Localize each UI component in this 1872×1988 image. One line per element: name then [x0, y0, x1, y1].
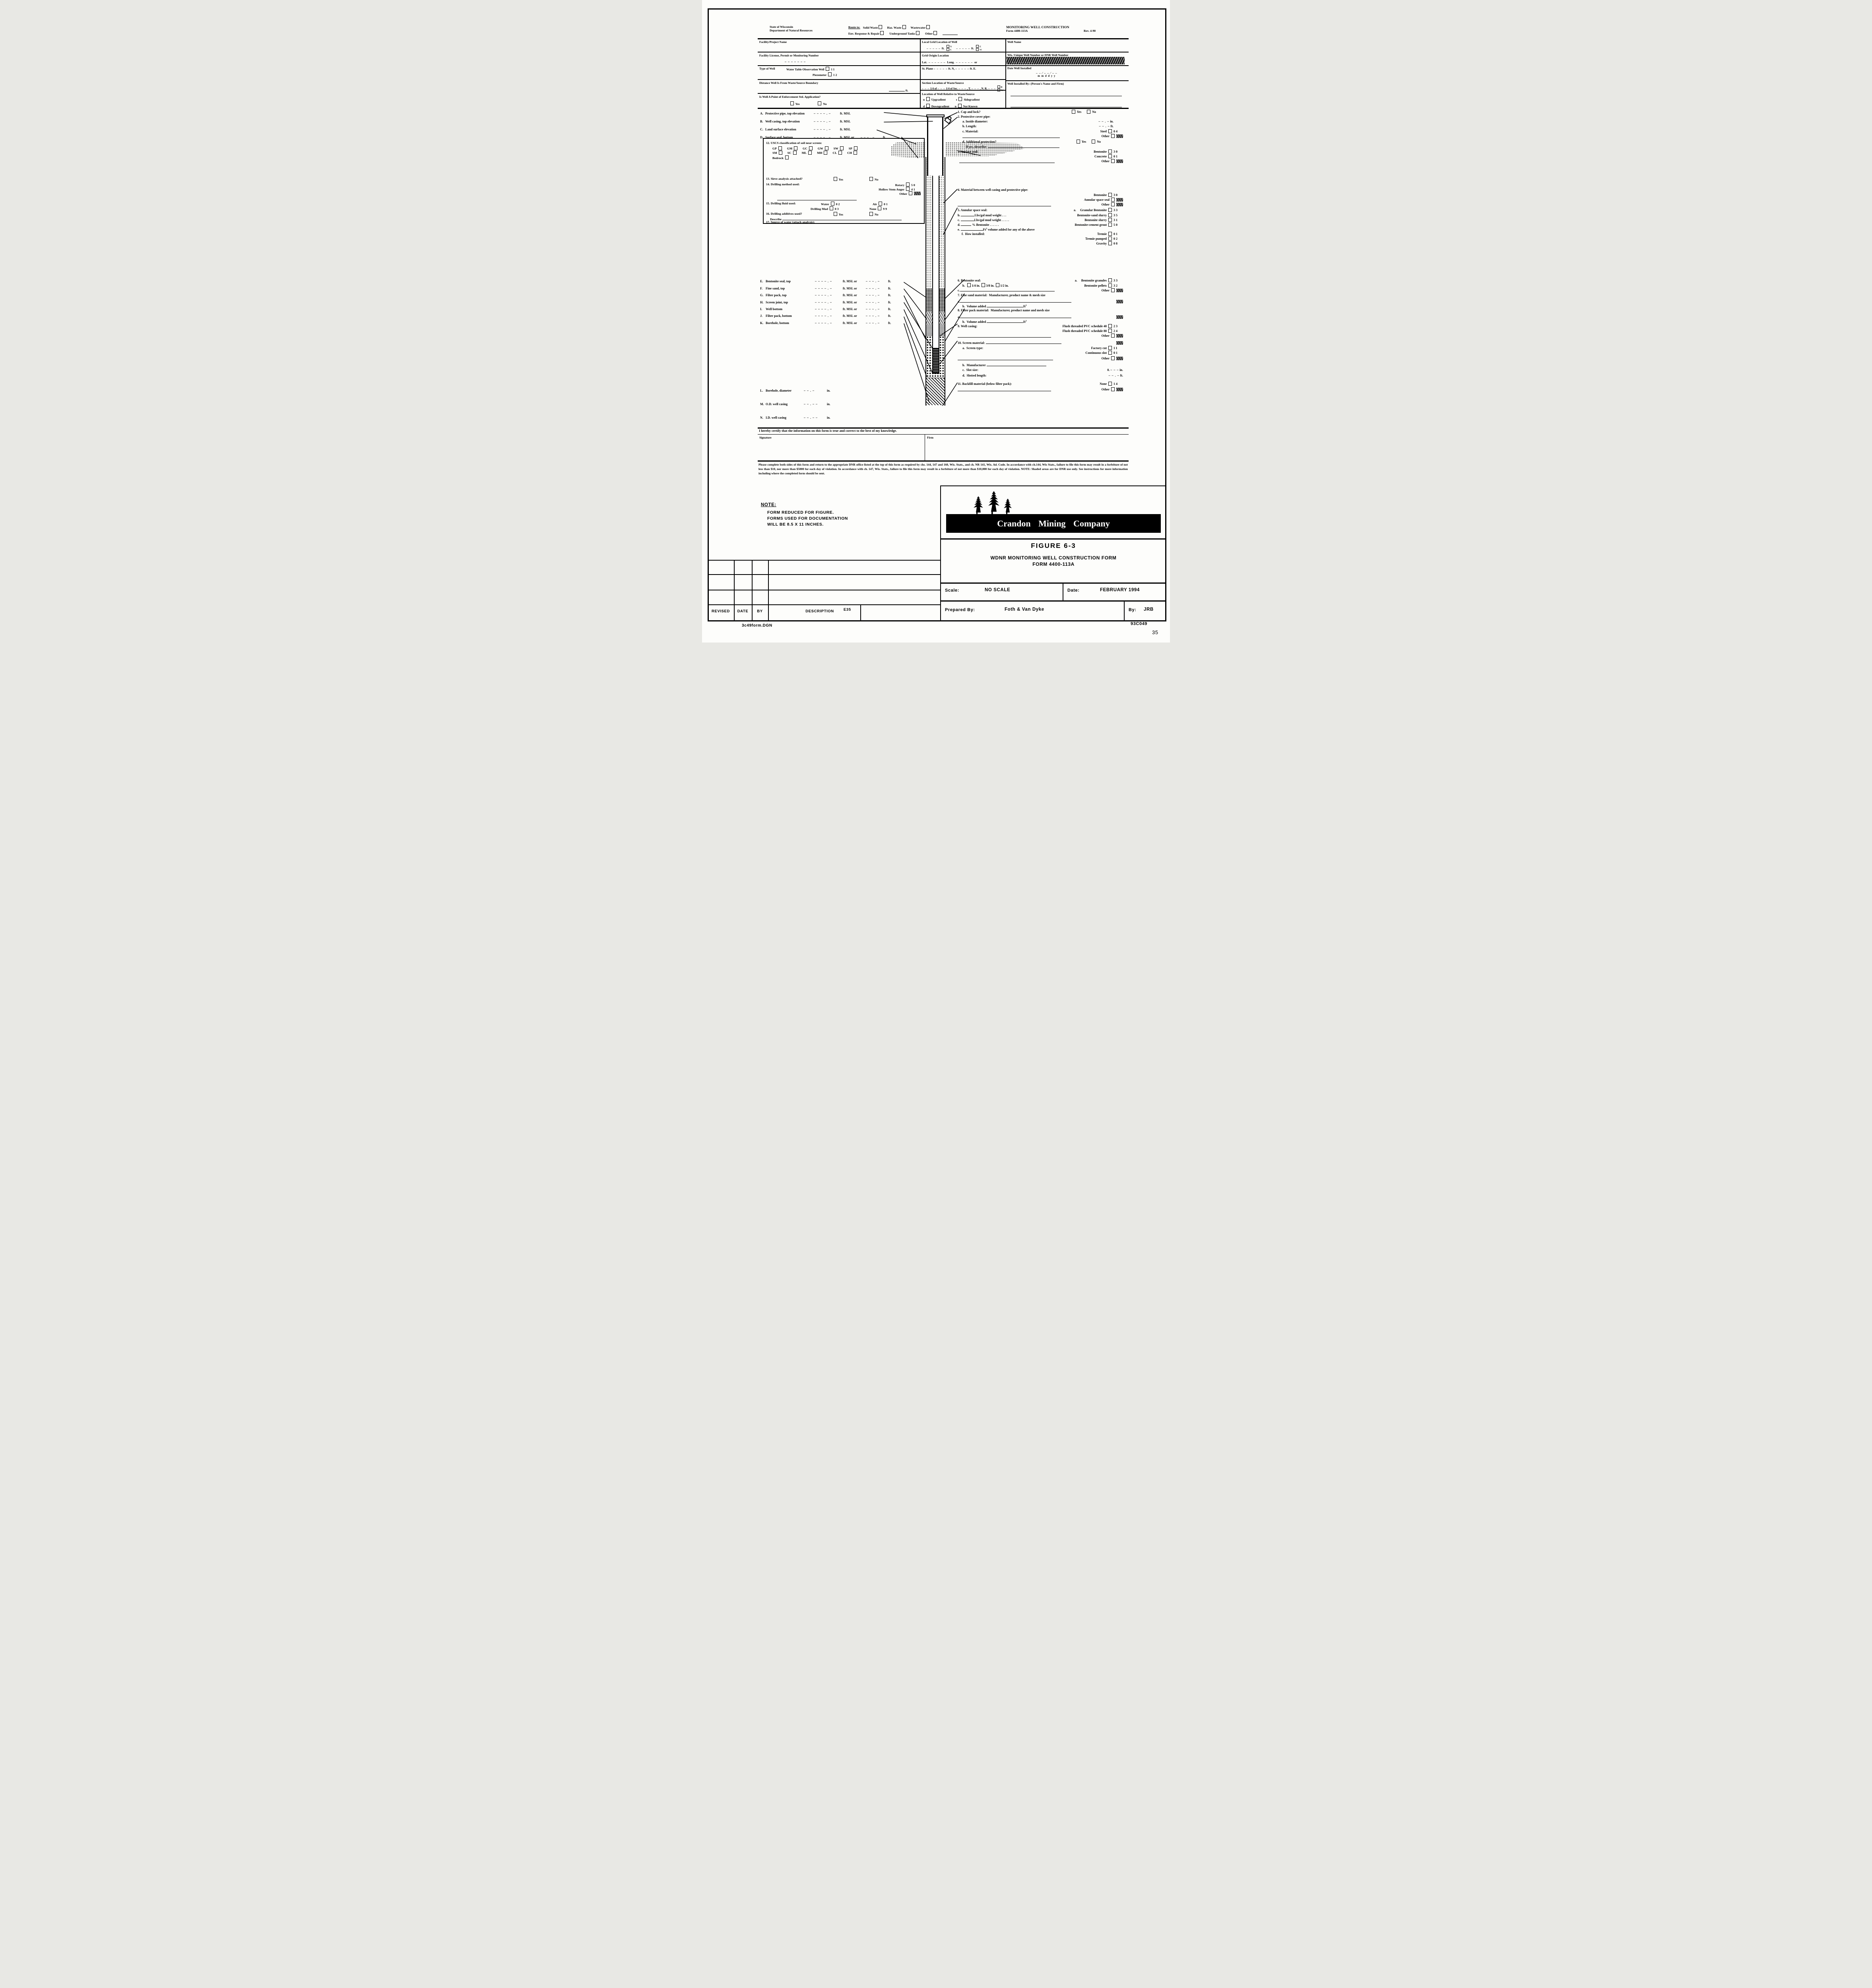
- company-name: Crandon Mining Company: [997, 518, 1110, 529]
- note-line: FORM REDUCED FOR FIGURE.: [767, 510, 848, 516]
- revision-header: DATE: [734, 609, 752, 613]
- revision-table: REVISED DATE BY DESCRIPTION E35: [708, 560, 940, 620]
- page-number: 35: [1152, 629, 1158, 635]
- company-banner: Crandon Mining Company: [946, 514, 1161, 533]
- by-value: JRB: [1144, 607, 1154, 612]
- note-line: WILL BE 8.5 X 11 INCHES.: [767, 522, 848, 528]
- note-line: FORMS USED FOR DOCUMENTATION: [767, 516, 848, 522]
- by-label: By:: [1129, 608, 1137, 612]
- revision-code: E35: [844, 608, 851, 612]
- prepared-by-value: Foth & Van Dyke: [1005, 607, 1044, 612]
- scale-value: NO SCALE: [985, 588, 1010, 592]
- date-value: FEBRUARY 1994: [1100, 588, 1140, 592]
- figure-number: FIGURE 6-3: [941, 542, 1166, 550]
- title-block: Crandon Mining Company FIGURE 6-3 WDNR M…: [940, 485, 1165, 620]
- scanned-figure-page: State of Wisconsin Department of Natural…: [702, 0, 1170, 643]
- wdnr-form: State of Wisconsin Department of Natural…: [758, 22, 1129, 481]
- scale-label: Scale:: [945, 588, 959, 593]
- prepared-by-label: Prepared By:: [945, 608, 975, 612]
- drawing-file-name: 3c49form.DGN: [742, 623, 772, 628]
- figure-title: WDNR MONITORING WELL CONSTRUCTION FORM F…: [941, 555, 1166, 567]
- note-heading: NOTE:: [761, 503, 848, 507]
- document-number: 93C049: [1131, 621, 1147, 626]
- date-label: Date:: [1067, 588, 1080, 593]
- note-block: NOTE: FORM REDUCED FOR FIGURE. FORMS USE…: [761, 503, 848, 528]
- leader-lines-overlay: [758, 22, 1129, 481]
- revision-header: REVISED: [708, 609, 734, 613]
- revision-header: BY: [752, 609, 768, 613]
- pine-trees-logo: [968, 487, 1016, 514]
